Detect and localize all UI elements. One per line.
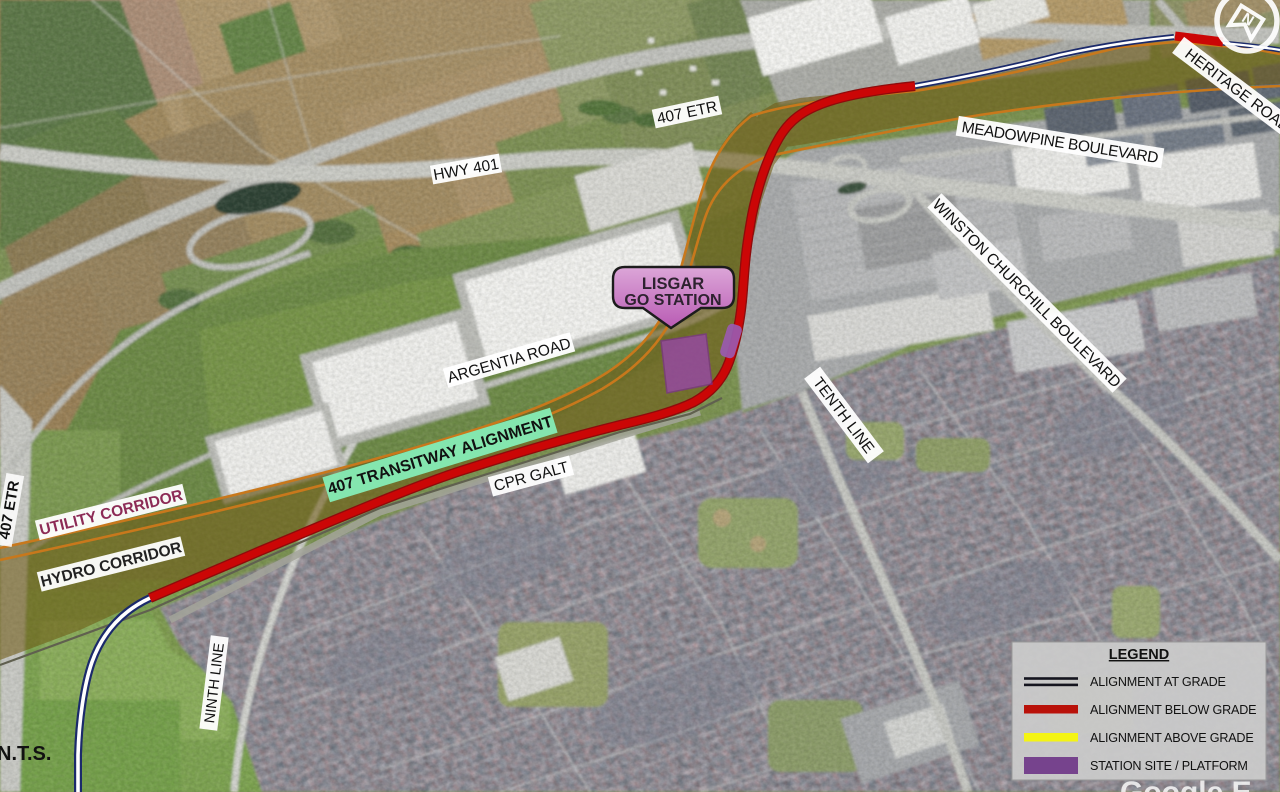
svg-text:STATION SITE / PLATFORM: STATION SITE / PLATFORM: [1090, 759, 1248, 773]
svg-text:LISGAR: LISGAR: [642, 275, 704, 293]
svg-text:ALIGNMENT ABOVE GRADE: ALIGNMENT ABOVE GRADE: [1090, 731, 1254, 745]
svg-text:ALIGNMENT BELOW GRADE: ALIGNMENT BELOW GRADE: [1090, 703, 1256, 717]
svg-text:LEGEND: LEGEND: [1109, 647, 1169, 663]
svg-text:N.T.S.: N.T.S.: [0, 743, 51, 765]
svg-text:Google E: Google E: [1120, 776, 1252, 792]
svg-text:GO STATION: GO STATION: [624, 292, 721, 309]
svg-text:ALIGNMENT AT GRADE: ALIGNMENT AT GRADE: [1090, 675, 1226, 689]
